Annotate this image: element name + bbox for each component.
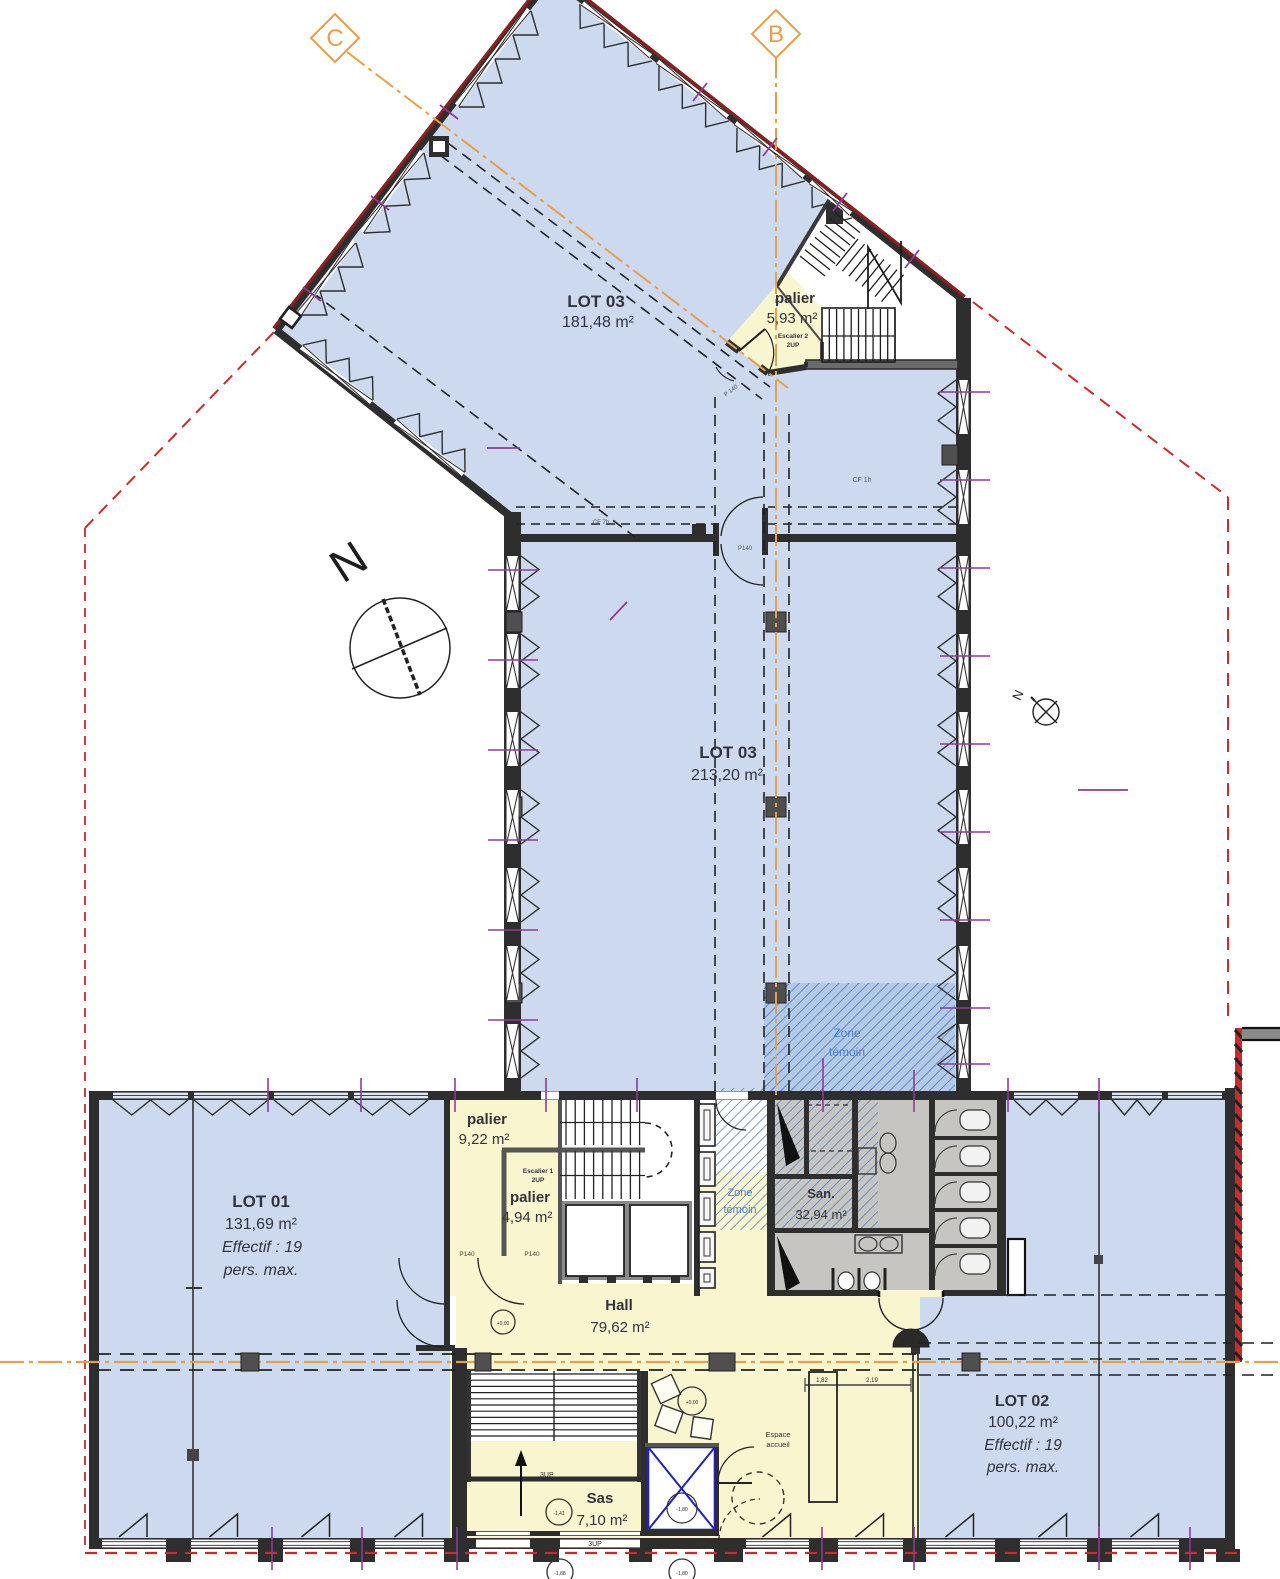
svg-text:accueil: accueil	[766, 1440, 790, 1449]
svg-text:LOT 03: LOT 03	[567, 292, 625, 311]
svg-text:5,93 m²: 5,93 m²	[767, 310, 818, 327]
svg-text:palier: palier	[467, 1111, 507, 1128]
svg-text:-1,80: -1,80	[676, 1571, 688, 1577]
svg-text:+0,00: +0,00	[686, 1400, 699, 1406]
svg-text:Hall: Hall	[605, 1297, 633, 1314]
svg-text:2UP: 2UP	[787, 342, 800, 349]
svg-text:LOT 03: LOT 03	[699, 743, 757, 762]
svg-text:-1,88: -1,88	[554, 1571, 566, 1577]
svg-text:Espace: Espace	[765, 1430, 790, 1439]
svg-text:79,62 m²: 79,62 m²	[590, 1319, 649, 1336]
svg-text:Zone: Zone	[727, 1187, 752, 1199]
svg-text:palier: palier	[510, 1189, 550, 1206]
svg-text:P140: P140	[738, 546, 753, 552]
svg-text:1,82: 1,82	[816, 1378, 828, 1384]
svg-text:2UP: 2UP	[532, 1177, 545, 1184]
svg-text:P140: P140	[459, 1251, 475, 1258]
svg-text:P140: P140	[524, 1251, 540, 1258]
svg-text:Sas: Sas	[587, 1490, 614, 1507]
svg-text:témoin: témoin	[829, 1045, 865, 1059]
svg-text:1UP: 1UP	[693, 1541, 707, 1548]
svg-text:Escalier 1: Escalier 1	[523, 1168, 554, 1175]
svg-text:100,22 m²: 100,22 m²	[988, 1414, 1058, 1431]
svg-text:2,19: 2,19	[866, 1378, 878, 1384]
svg-text:3UP: 3UP	[540, 1472, 554, 1479]
svg-text:pers. max.: pers. max.	[223, 1262, 299, 1279]
svg-text:Effectif : 19: Effectif : 19	[984, 1437, 1062, 1454]
svg-text:-1,41: -1,41	[553, 1511, 565, 1517]
svg-text:131,69 m²: 131,69 m²	[225, 1216, 298, 1233]
svg-text:Escalier 2: Escalier 2	[778, 333, 809, 340]
svg-text:C: C	[326, 25, 343, 52]
svg-text:LOT 01: LOT 01	[232, 1192, 290, 1211]
svg-text:3UP: 3UP	[588, 1541, 602, 1548]
svg-text:9,22 m²: 9,22 m²	[459, 1131, 510, 1148]
svg-text:Zone: Zone	[833, 1026, 861, 1040]
svg-text:4,94 m²: 4,94 m²	[502, 1209, 553, 1226]
svg-text:B: B	[768, 21, 784, 48]
svg-text:palier: palier	[775, 290, 815, 307]
svg-text:181,48 m²: 181,48 m²	[562, 314, 635, 331]
svg-text:-1,80: -1,80	[676, 1507, 688, 1513]
svg-text:CF 1h: CF 1h	[852, 477, 871, 484]
svg-text:pers. max.: pers. max.	[986, 1459, 1059, 1476]
svg-text:San.: San.	[807, 1186, 834, 1201]
svg-text:témoin: témoin	[723, 1204, 756, 1216]
svg-text:7,10 m²: 7,10 m²	[577, 1512, 628, 1529]
svg-text:213,20 m²: 213,20 m²	[691, 767, 764, 784]
svg-text:LOT 02: LOT 02	[995, 1393, 1049, 1410]
svg-text:Effectif : 19: Effectif : 19	[222, 1239, 302, 1256]
svg-text:+0,00: +0,00	[497, 1321, 510, 1327]
svg-text:CF 7h: CF 7h	[593, 520, 609, 526]
svg-text:32,94 m²: 32,94 m²	[795, 1207, 847, 1222]
